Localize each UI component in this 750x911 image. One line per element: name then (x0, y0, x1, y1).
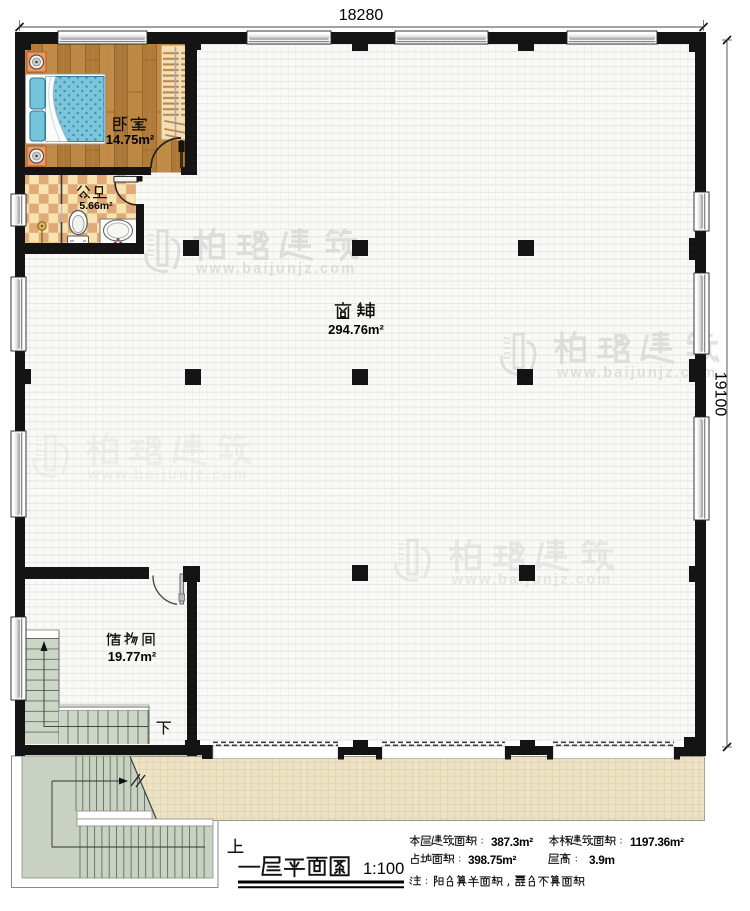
svg-text:5.66m²: 5.66m² (79, 200, 113, 212)
svg-text:www.baijunjz.com: www.baijunjz.com (195, 261, 356, 277)
svg-text:387.3m²: 387.3m² (491, 835, 533, 849)
svg-text:19100: 19100 (712, 372, 729, 417)
svg-text:14.75m²: 14.75m² (106, 132, 155, 147)
svg-text:1:100: 1:100 (363, 860, 404, 878)
svg-text:19.77m²: 19.77m² (108, 649, 157, 664)
svg-text:18280: 18280 (339, 7, 384, 24)
svg-text:3.9m: 3.9m (589, 853, 615, 867)
svg-text:294.76m²: 294.76m² (328, 322, 384, 337)
svg-text:www.baijunjz.com: www.baijunjz.com (87, 467, 248, 483)
svg-text:1197.36m²: 1197.36m² (630, 835, 684, 849)
svg-text:398.75m²: 398.75m² (468, 853, 516, 867)
